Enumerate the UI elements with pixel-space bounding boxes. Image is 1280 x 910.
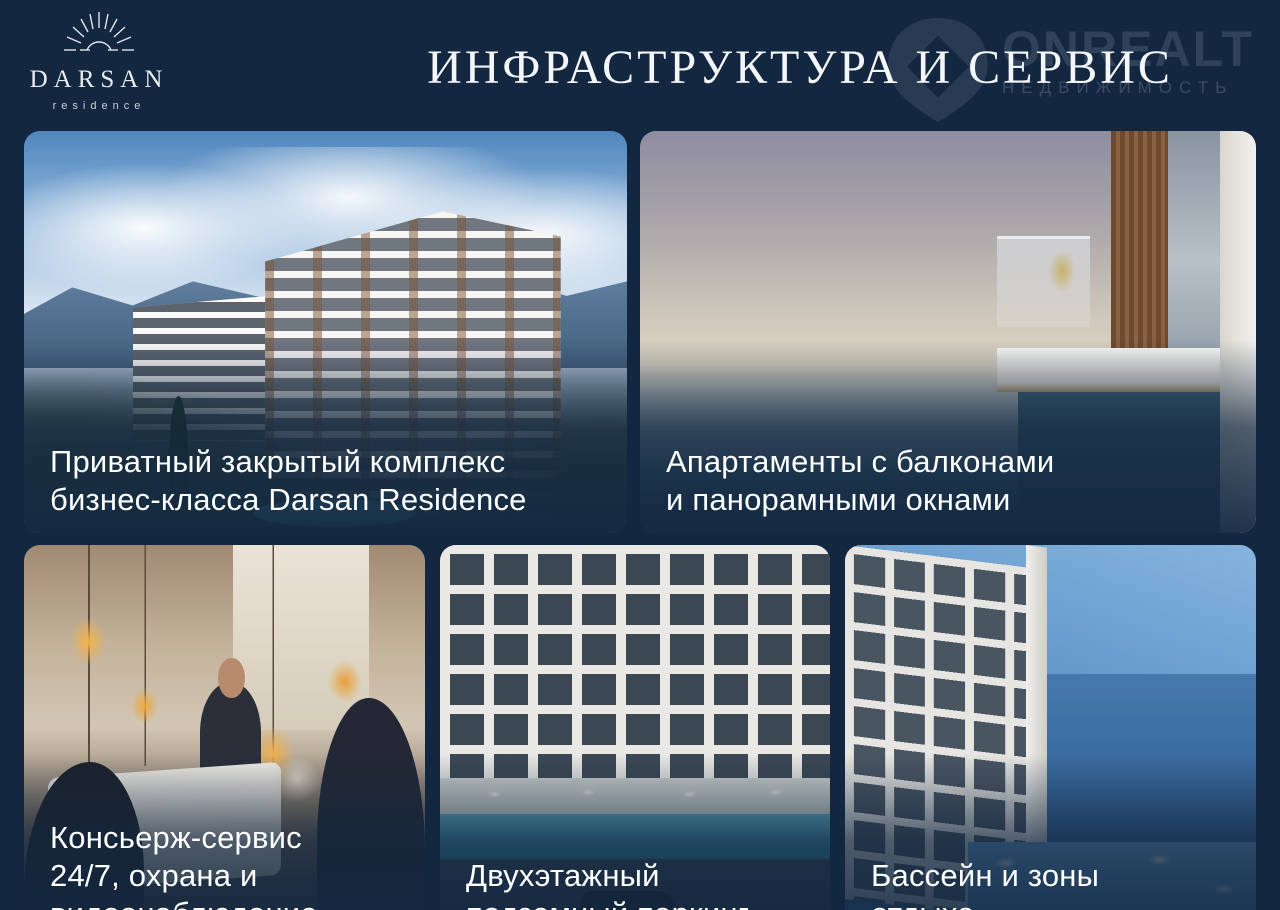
caption-line: Приватный закрытый комплекс xyxy=(50,443,613,481)
card-caption: Двухэтажный подземный паркинг xyxy=(466,857,816,910)
card-private-complex: Приватный закрытый комплекс бизнес-класс… xyxy=(24,131,627,533)
page-title: ИНФРАСТРУКТУРА И СЕРВИС xyxy=(360,40,1240,95)
caption-line: 24/7, охрана и xyxy=(50,857,411,895)
caption-line: бизнес-класса Darsan Residence xyxy=(50,481,613,519)
caption-line: отдыха xyxy=(871,895,1242,910)
receptionist-head xyxy=(218,658,244,698)
darsan-logo: DARSAN residence xyxy=(24,10,174,112)
card-caption: Апартаменты с балконами и панорамными ок… xyxy=(666,443,1242,519)
card-apartments-balconies: Апартаменты с балконами и панорамными ок… xyxy=(640,131,1256,533)
logo-brand-text: DARSAN xyxy=(24,66,174,94)
caption-line: Бассейн и зоны xyxy=(871,857,1242,895)
card-concierge-service: Консьерж-сервис 24/7, охрана и видеонабл… xyxy=(24,545,425,910)
caption-line: подземный паркинг xyxy=(466,895,816,910)
caption-line: видеонаблюдение xyxy=(50,895,411,910)
balcony-plant xyxy=(1044,252,1080,300)
card-caption: Консьерж-сервис 24/7, охрана и видеонабл… xyxy=(50,819,411,910)
sunburst-icon xyxy=(60,10,138,62)
building-facade xyxy=(440,545,830,778)
caption-line: Консьерж-сервис xyxy=(50,819,411,857)
slide-infrastructure-and-service: DARSAN residence ONREALT НЕДВИЖИМОСТЬ ИН… xyxy=(0,0,1280,910)
card-caption: Приватный закрытый комплекс бизнес-класс… xyxy=(50,443,613,519)
logo-subtitle-text: residence xyxy=(24,100,174,112)
caption-line: Двухэтажный xyxy=(466,857,816,895)
wood-slats xyxy=(1111,131,1168,356)
card-underground-parking: Двухэтажный подземный паркинг xyxy=(440,545,830,910)
caption-line: Апартаменты с балконами xyxy=(666,443,1242,481)
caption-line: и панорамными окнами xyxy=(666,481,1242,519)
card-caption: Бассейн и зоны отдыха xyxy=(871,857,1242,910)
card-pool-recreation: Бассейн и зоны отдыха xyxy=(845,545,1256,910)
window-glass xyxy=(1168,131,1220,348)
